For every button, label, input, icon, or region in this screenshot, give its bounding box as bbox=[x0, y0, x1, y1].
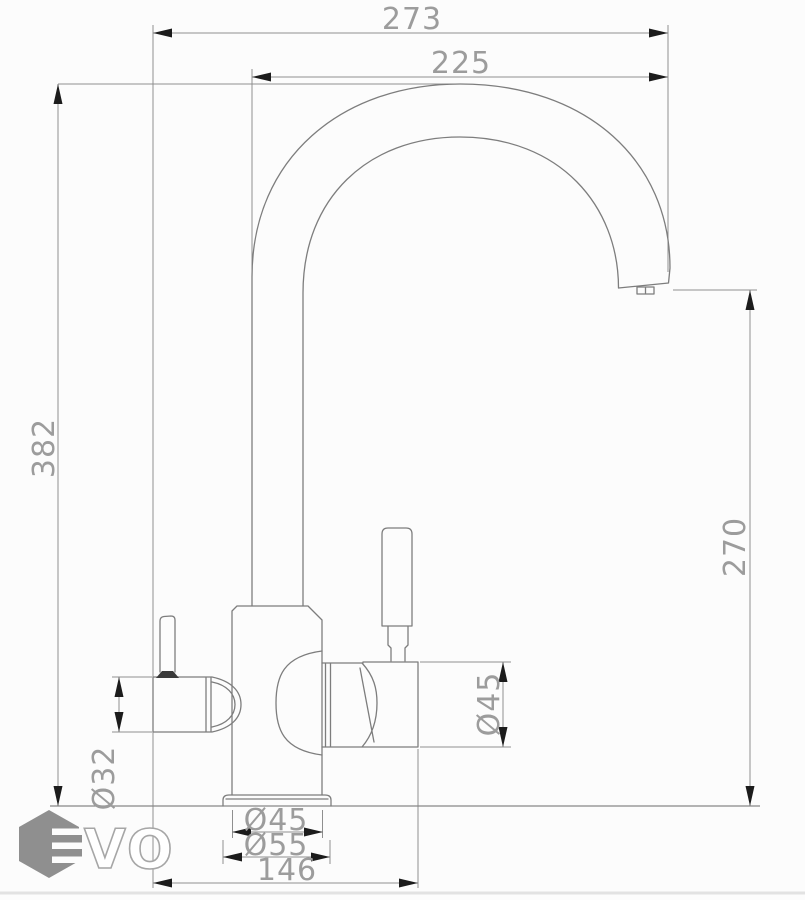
label-overall-height: 382 bbox=[27, 418, 62, 478]
extension-lines bbox=[58, 25, 757, 888]
body-outline bbox=[232, 606, 322, 795]
logo-e-bar bbox=[54, 849, 82, 857]
dimension-lines bbox=[58, 33, 750, 883]
label-filter-spout-diameter: Ø32 bbox=[87, 746, 122, 811]
arrow-spout-height-bottom bbox=[746, 786, 755, 806]
arrow-overall-height-bottom bbox=[54, 786, 63, 806]
logo-e-bar bbox=[54, 835, 82, 843]
arrowheads bbox=[54, 29, 755, 888]
arrow-flange-diameter-left bbox=[223, 853, 242, 862]
evo-logo: VO bbox=[19, 810, 175, 881]
label-spout-reach: 225 bbox=[431, 46, 491, 81]
dimension-labels: 273 225 382 270 Ø45 Ø32 Ø45 Ø55 146 bbox=[27, 2, 753, 888]
arrow-overall-width-right bbox=[649, 29, 668, 38]
cartridge-dome bbox=[276, 651, 322, 755]
arrow-filter-diameter-bottom bbox=[115, 712, 124, 732]
arrow-spout-reach-left bbox=[252, 73, 271, 82]
spout-gooseneck bbox=[252, 84, 670, 606]
label-overall-width: 273 bbox=[382, 2, 442, 37]
faucet-technical-drawing: 273 225 382 270 Ø45 Ø32 Ø45 Ø55 146 VO bbox=[0, 0, 805, 900]
label-footprint-width: 146 bbox=[257, 853, 317, 888]
filter-lever bbox=[160, 616, 175, 672]
faucet-outline bbox=[153, 84, 670, 806]
drawing-page: 273 225 382 270 Ø45 Ø32 Ø45 Ø55 146 VO bbox=[0, 0, 805, 900]
logo-letters: VO bbox=[84, 818, 175, 881]
arrow-overall-width-left bbox=[153, 29, 172, 38]
arrow-overall-height-top bbox=[54, 84, 63, 104]
handle-section bbox=[322, 662, 418, 747]
label-handle-body-diameter: Ø45 bbox=[472, 672, 507, 737]
label-spout-outlet-height: 270 bbox=[718, 517, 753, 577]
arrow-footprint-right bbox=[399, 879, 418, 888]
arrow-spout-reach-right bbox=[649, 73, 668, 82]
arrow-spout-height-top bbox=[746, 290, 755, 310]
handle-lever bbox=[382, 528, 412, 661]
filter-outlet bbox=[153, 677, 241, 732]
arrow-filter-diameter-top bbox=[115, 677, 124, 697]
aerator bbox=[637, 287, 654, 294]
